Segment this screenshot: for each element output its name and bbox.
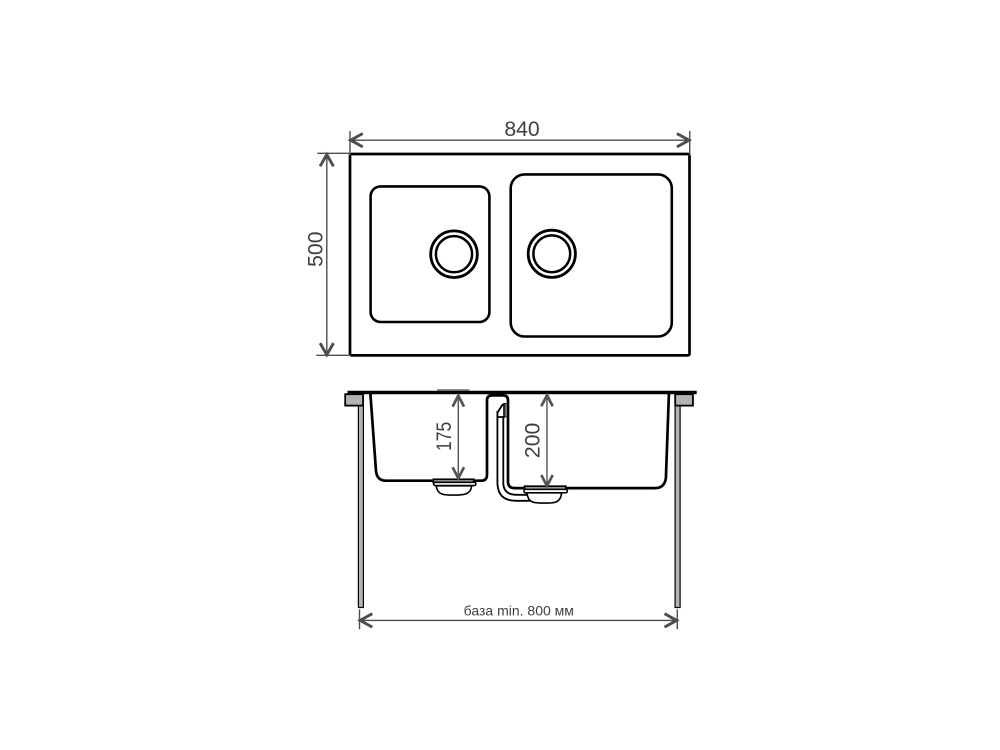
svg-text:база min. 800 мм: база min. 800 мм xyxy=(464,602,574,618)
svg-text:175: 175 xyxy=(433,422,457,451)
svg-text:500: 500 xyxy=(304,232,327,267)
svg-text:200: 200 xyxy=(522,423,545,458)
svg-text:840: 840 xyxy=(504,118,539,141)
